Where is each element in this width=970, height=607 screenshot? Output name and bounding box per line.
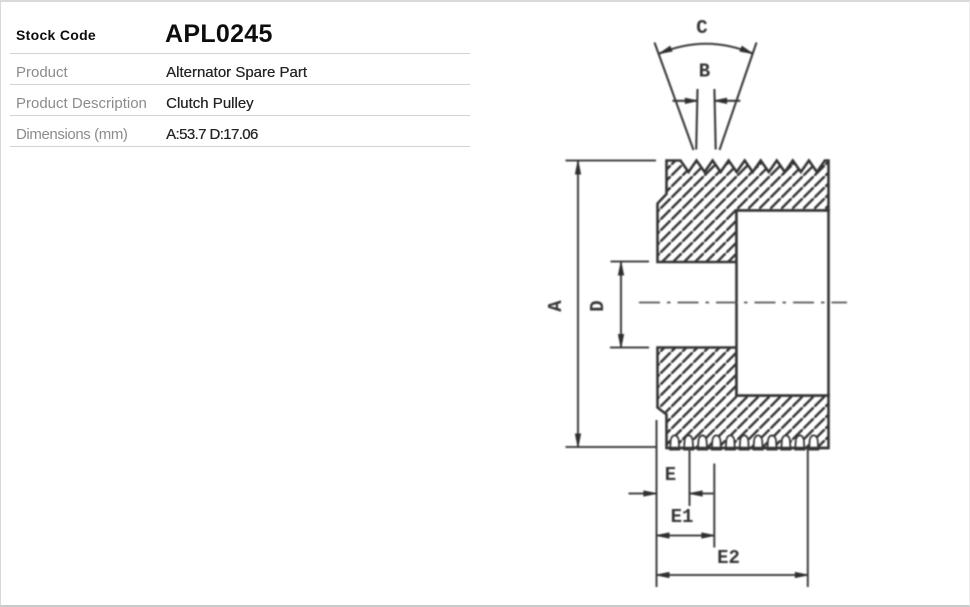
svg-text:E1: E1 <box>671 506 694 528</box>
svg-text:B: B <box>699 61 710 83</box>
svg-text:C: C <box>696 17 707 39</box>
svg-text:E: E <box>665 464 676 486</box>
svg-text:D: D <box>587 300 609 311</box>
svg-text:E2: E2 <box>717 547 740 569</box>
svg-text:A: A <box>545 300 567 312</box>
